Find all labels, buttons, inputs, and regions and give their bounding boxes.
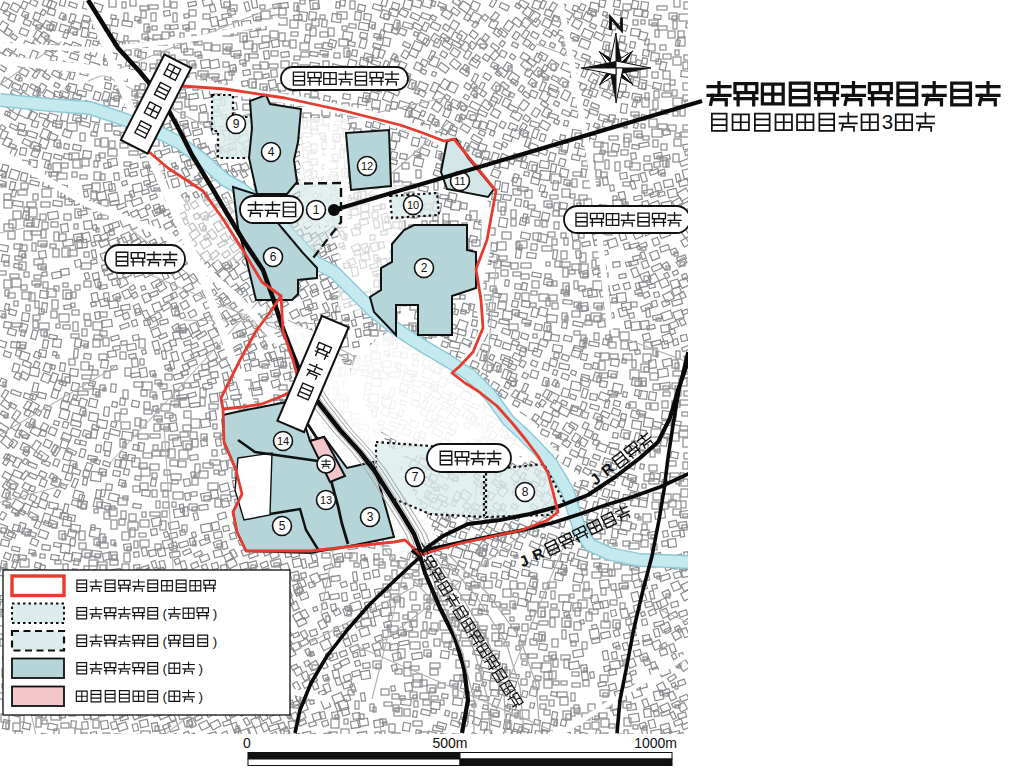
svg-text:8: 8 (522, 485, 529, 499)
svg-text:3: 3 (367, 510, 374, 524)
svg-text:6: 6 (270, 250, 277, 264)
svg-text:14: 14 (277, 435, 289, 447)
svg-text:(: ( (163, 661, 168, 676)
svg-text:(: ( (163, 689, 168, 704)
svg-text:12: 12 (361, 160, 373, 172)
svg-text:11: 11 (454, 175, 465, 187)
svg-text:7: 7 (412, 470, 419, 484)
svg-text:4: 4 (268, 145, 275, 159)
svg-text:1000m: 1000m (634, 735, 677, 751)
svg-text:2: 2 (421, 261, 428, 275)
svg-text:): ) (199, 661, 204, 676)
svg-text:(: ( (163, 634, 168, 649)
svg-text:9: 9 (233, 117, 240, 131)
svg-text:500m: 500m (432, 735, 467, 751)
svg-text:(: ( (163, 606, 168, 621)
svg-text:): ) (213, 606, 218, 621)
svg-text:10: 10 (407, 199, 419, 211)
svg-text:1: 1 (313, 203, 320, 217)
svg-text:13: 13 (320, 494, 332, 506)
svg-text:): ) (213, 634, 218, 649)
svg-text:): ) (199, 689, 204, 704)
svg-text:3: 3 (882, 110, 893, 133)
svg-text:5: 5 (279, 519, 286, 533)
svg-text:0: 0 (243, 735, 251, 751)
